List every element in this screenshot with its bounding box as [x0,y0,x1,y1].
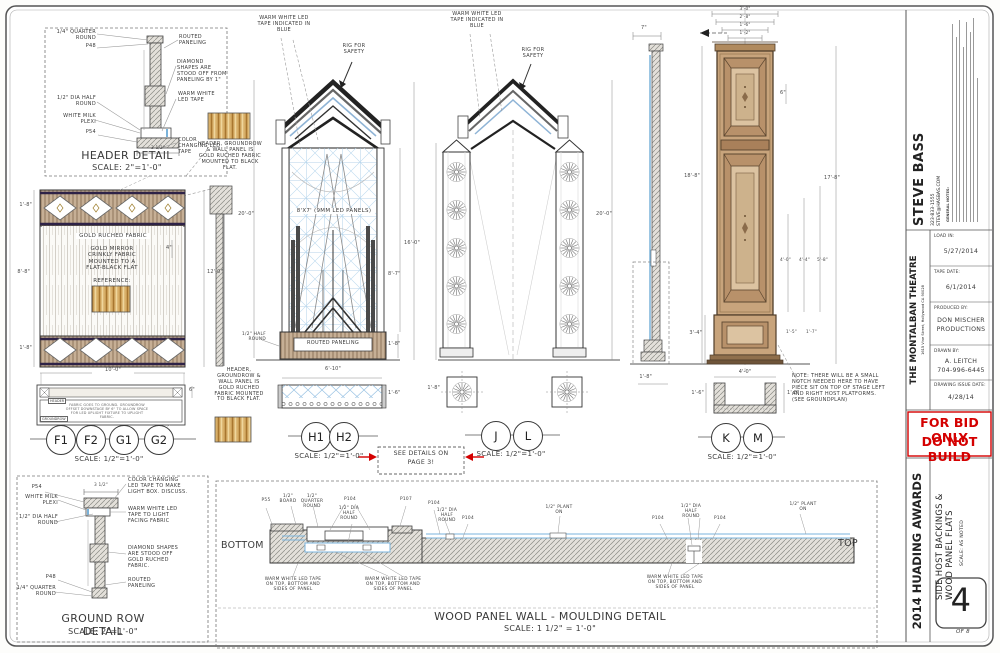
mo-p104: P104 [424,501,444,506]
plan-fabric-note: FABRIC GOES TO GROUND. GROUNDROW OFFSET … [64,403,150,419]
fabric-note: HEADER, GROUNDROW & WALL PANEL IS GOLD R… [210,368,268,403]
piece-mark-h1: H1 [301,422,331,452]
dim-4in: 4" [166,246,178,252]
callout-white-milk-plexi: WHITE MILK PLEXI [54,114,96,126]
moulding-top-label: TOP [838,538,858,549]
see-details-line2: PAGE 3! [380,459,462,466]
header-detail-title: HEADER DETAIL [62,150,192,163]
designer-email: STEVE@HASBAS.COM [937,26,943,226]
dim-18-8: 18'-8" [678,174,700,180]
dim-1-6-top: 1'-6" [731,23,759,28]
piece-mark-h2: H2 [329,422,359,452]
mo-half-round: 1/2" DIA HALF ROUND [434,508,460,523]
dim-1-6-strip: 1'-6" [388,391,410,397]
sheet-of: OF 8 [956,629,970,635]
venue-address: 1615 Vine Street, Hollywood CA 90028 [921,234,927,406]
moulding-scale: SCALE: 1 1/2" = 1'-0" [400,624,700,633]
mo-led-note: WARM WHITE LED TAPE ON TOP, BOTTOM AND S… [362,577,424,592]
dim-2-8: 2'-8" [731,15,759,20]
gr-p48: P48 [28,575,56,581]
sheet-title-line1: SIDE HOST BACKINGS & [934,470,944,600]
fg-scale: SCALE: 1/2"=1'-0" [66,455,152,463]
mo-board: 1/2" BOARD [276,494,300,504]
mo-p104: P104 [648,516,668,521]
mo-p107: P107 [396,497,416,502]
notch-note: NOTE: THERE WILL BE A SMALL NOTCH NEEDED… [792,374,890,403]
piece-mark-m: M [743,423,773,453]
mo-quarter-round: 1/2" QUARTER ROUND [298,494,326,509]
dim-4-4: 4'-4" [799,258,817,263]
dim-10-0: 10'-0" [92,368,134,374]
pylon-led-panels-label: 8'X7' (9MM LED PANELS) [293,208,375,214]
h-scale: SCALE: 1/2"=1'-0" [286,452,372,460]
stamp-do-not-build: DO NOT BUILD [909,435,990,465]
towers-rig-note: RIG FOR SAFETY [512,48,554,60]
dim-1-2: 1'-2" [731,31,759,36]
dim-6in: 6" [189,388,201,394]
towers-warmwhite-note: WARM WHITE LED TAPE INDICATED IN BLUE [448,12,506,30]
dim-12-0: 12'-0" [207,270,231,276]
dim-6-10: 6'-10" [310,367,356,373]
callout-half-round: 1/2" DIA HALF ROUND [48,96,96,108]
gr-routed: ROUTED PANELING [128,578,180,590]
scale-as-noted: SCALE: AS NOTED [960,488,968,566]
wall-mirror-label: GOLD MIRROR CRINKLY FABRIC MOUNTED TO A … [80,246,144,272]
general-notes-block: GENERAL NOTES: [946,16,990,222]
dim-7in: 7" [641,26,653,32]
tape-date-label: TAPE DATE: [934,270,960,275]
mo-plant-on: 1/2" PLANT ON [544,505,574,515]
issue-date-value: 4/28/14 [934,394,988,401]
dim-1-8-plan: 1'-8" [418,386,440,392]
piece-mark-g1: G1 [109,425,139,455]
dim-6in-col: 6" [780,91,792,97]
load-in-value: 5/27/2014 [934,248,988,255]
produced-by-line1: DON MISCHER [934,317,988,324]
mo-p104: P104 [458,516,478,521]
gr-p54: P54 [10,485,42,491]
moulding-bottom-label: BOTTOM [221,540,264,551]
dim-8-7: 8'-7" [388,272,412,278]
callout-diamond-shapes: DIAMOND SHAPES ARE STOOD OFF FROM PANELI… [177,60,227,84]
piece-mark-f2: F2 [76,425,106,455]
dim-1-8-section: 1'-8" [630,375,652,381]
piece-mark-f1: F1 [46,425,76,455]
dim-20-0-pylon: 20'-0" [228,212,254,218]
fabric-note: HEADER, GROUNDROW & WALL PANEL IS GOLD R… [198,142,262,171]
callout-p54: P54 [66,130,96,136]
piece-mark-l: L [513,421,543,451]
dim-3-4: 3'-4" [680,331,702,337]
dim-5-8: 5'-8" [817,258,835,263]
mo-p55: P55 [256,498,276,503]
drawn-by-label: DRAWN BY: [934,349,959,354]
sheet-number: 4 [936,582,986,620]
callout-routed-paneling: ROUTED PANELING [179,35,223,47]
dim-1-8-bottom: 1'-8" [10,346,32,352]
dim-4-0-plan: 4'-0" [724,370,766,376]
fabric-swatch [215,417,251,442]
drawing-sheet: 1/4" QUARTER ROUND P48 ROUTED PANELING D… [0,0,1000,653]
dim-1-8-base: 1'-8" [388,342,410,348]
dim-1-6-plan: 1'-6" [682,391,704,397]
designer-name: STEVE BASS [912,26,930,226]
dim-20-0-towers: 20'-0" [596,212,622,218]
mo-led-note: WARM WHITE LED TAPE ON TOP, BOTTOM AND S… [644,575,706,590]
callout-warm-white-led: WARM WHITE LED TAPE [178,92,222,104]
see-details-line1: SEE DETAILS ON [380,450,462,457]
pylon-warmwhite-note: WARM WHITE LED TAPE INDICATED IN BLUE [256,16,312,34]
gr-warm-white: WARM WHITE LED TAPE TO LIGHT FACING FABR… [128,507,190,525]
dim-4-0-r: 4'-0" [780,258,798,263]
dim-17-8: 17'-8" [824,176,850,182]
gr-quarter-round: 1/4" QUARTER ROUND [12,586,56,598]
gr-diamond: DIAMOND SHAPES ARE STOOD OFF GOLD RUCHED… [128,546,188,570]
general-notes-heading: GENERAL NOTES: [946,16,950,222]
drawn-by-line2: 704-996-6445 [934,367,988,374]
gr-half-round: 1/2" DIA HALF ROUND [12,515,58,527]
produced-by-label: PRODUCED BY: [934,306,968,311]
load-in-label: LOAD IN: [934,234,954,239]
header-detail-scale: SCALE: 2"=1'-0" [62,163,192,172]
gr-plexi: WHITE MILK PLEXI [16,495,58,507]
jl-scale: SCALE: 1/2"=1'-0" [468,450,554,458]
dim-16-0: 16'-0" [404,241,430,247]
dim-1-7: 1'-7" [806,330,824,335]
produced-by-line2: PRODUCTIONS [934,326,988,333]
mo-half-round: 1/2" DIA HALF ROUND [336,506,362,521]
wall-reference-label: REFERENCE: [80,278,144,284]
fabric-swatch [208,113,250,139]
km-scale: SCALE: 1/2"=1'-0" [698,453,786,461]
tape-date-value: 6/1/2014 [934,284,988,291]
piece-mark-k: K [711,423,741,453]
pylon-routed-label: ROUTED PANELING [294,341,372,347]
gr-color-changing: COLOR CHANGING LED TAPE TO MAKE LIGHT BO… [128,478,190,496]
pylon-rig-note: RIG FOR SAFETY [332,44,376,56]
gr-dim: 3 1/2" [84,483,118,488]
mo-p104: P104 [340,497,360,502]
callout-p48: P48 [66,44,96,50]
callout-quarter-round: 1/4" QUARTER ROUND [50,30,96,42]
mo-led-note: WARM WHITE LED TAPE ON TOP, BOTTOM AND S… [262,577,324,592]
pylon-half-round-label: 1/2" HALF ROUND [234,332,266,342]
dim-8-8: 8'-8" [8,270,30,276]
mo-p104: P104 [710,516,730,521]
dim-1-5: 1'-5" [786,330,804,335]
drawn-by-line1: A. LEITCH [934,358,988,365]
groundrow-scale: SCALE: 2"=1'-0" [40,627,166,636]
piece-mark-g2: G2 [144,425,174,455]
venue-name: THE MONTALBAN THEATRE [909,234,921,406]
dim-3-0: 3'-0" [731,7,759,12]
issue-date-label: DRAWING ISSUE DATE: [934,383,986,388]
piece-mark-j: J [481,421,511,451]
mo-half-round: 1/2" DIA HALF ROUND [678,504,704,519]
moulding-title: WOOD PANEL WALL - MOULDING DETAIL [400,611,700,624]
wall-ruched-label: GOLD RUCHED FABRIC [76,233,150,239]
mo-plant-on: 1/2" PLANT ON [788,502,818,512]
dim-1-8-top: 1'-8" [10,203,32,209]
show-title: 2014 HUADING AWARDS [910,462,926,640]
